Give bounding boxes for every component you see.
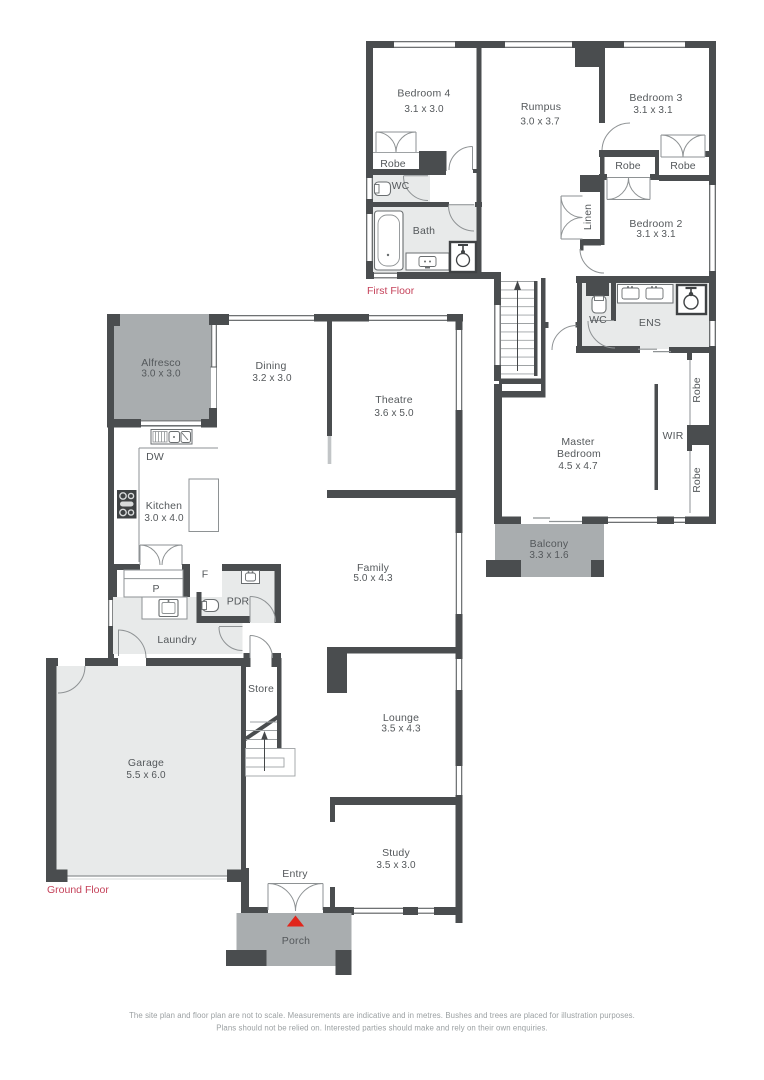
svg-text:Rumpus: Rumpus	[521, 101, 561, 113]
svg-text:Kitchen: Kitchen	[146, 500, 182, 512]
svg-text:5.5 x 6.0: 5.5 x 6.0	[126, 770, 166, 781]
svg-text:3.5 x 4.3: 3.5 x 4.3	[381, 724, 421, 735]
svg-text:Store: Store	[248, 683, 274, 695]
svg-text:Robe: Robe	[670, 160, 696, 172]
svg-text:5.0 x 4.3: 5.0 x 4.3	[353, 573, 393, 584]
svg-text:Robe: Robe	[691, 467, 703, 493]
svg-text:3.1 x 3.1: 3.1 x 3.1	[636, 229, 676, 240]
svg-text:3.0 x 4.0: 3.0 x 4.0	[144, 513, 184, 524]
svg-text:Theatre: Theatre	[375, 394, 413, 406]
svg-text:3.1 x 3.0: 3.1 x 3.0	[404, 104, 444, 115]
svg-text:WC: WC	[589, 314, 607, 326]
svg-text:Lounge: Lounge	[383, 712, 419, 724]
svg-text:Alfresco: Alfresco	[141, 357, 181, 369]
svg-text:Bedroom 4: Bedroom 4	[397, 88, 450, 100]
svg-text:3.0 x 3.0: 3.0 x 3.0	[141, 369, 181, 380]
svg-text:3.3 x 1.6: 3.3 x 1.6	[529, 550, 569, 561]
svg-text:WIR: WIR	[662, 430, 683, 442]
svg-text:Garage: Garage	[128, 757, 164, 769]
svg-text:Master: Master	[561, 436, 595, 448]
svg-text:DW: DW	[146, 451, 164, 463]
svg-text:Bath: Bath	[413, 225, 435, 237]
svg-text:Robe: Robe	[615, 160, 641, 172]
svg-text:3.1 x 3.1: 3.1 x 3.1	[633, 105, 673, 116]
svg-text:3.6 x 5.0: 3.6 x 5.0	[374, 408, 414, 419]
svg-text:4.5 x 4.7: 4.5 x 4.7	[558, 461, 598, 472]
svg-text:Laundry: Laundry	[157, 634, 197, 646]
svg-text:Plans should not be relied on.: Plans should not be relied on. Intereste…	[216, 1024, 547, 1033]
svg-text:3.2 x 3.0: 3.2 x 3.0	[252, 373, 292, 384]
svg-text:First Floor: First Floor	[367, 285, 415, 297]
svg-text:3.0 x 3.7: 3.0 x 3.7	[520, 117, 560, 128]
svg-text:Linen: Linen	[582, 204, 594, 230]
svg-text:3.5 x 3.0: 3.5 x 3.0	[376, 860, 416, 871]
svg-text:Robe: Robe	[380, 158, 406, 170]
svg-text:ENS: ENS	[639, 317, 661, 329]
svg-text:Dining: Dining	[256, 360, 287, 372]
svg-text:Ground Floor: Ground Floor	[47, 884, 109, 896]
svg-text:Porch: Porch	[282, 935, 310, 947]
svg-text:Bedroom 3: Bedroom 3	[629, 92, 682, 104]
svg-text:Study: Study	[382, 847, 410, 859]
svg-text:P: P	[152, 583, 159, 595]
svg-text:Entry: Entry	[282, 868, 308, 880]
svg-text:F: F	[202, 569, 209, 581]
svg-text:Robe: Robe	[691, 377, 703, 403]
svg-text:Balcony: Balcony	[530, 538, 569, 550]
svg-text:PDR: PDR	[227, 596, 250, 608]
svg-text:Bedroom: Bedroom	[557, 448, 601, 460]
svg-text:The site plan and floor plan a: The site plan and floor plan are not to …	[129, 1011, 635, 1020]
svg-text:WC: WC	[392, 180, 410, 192]
